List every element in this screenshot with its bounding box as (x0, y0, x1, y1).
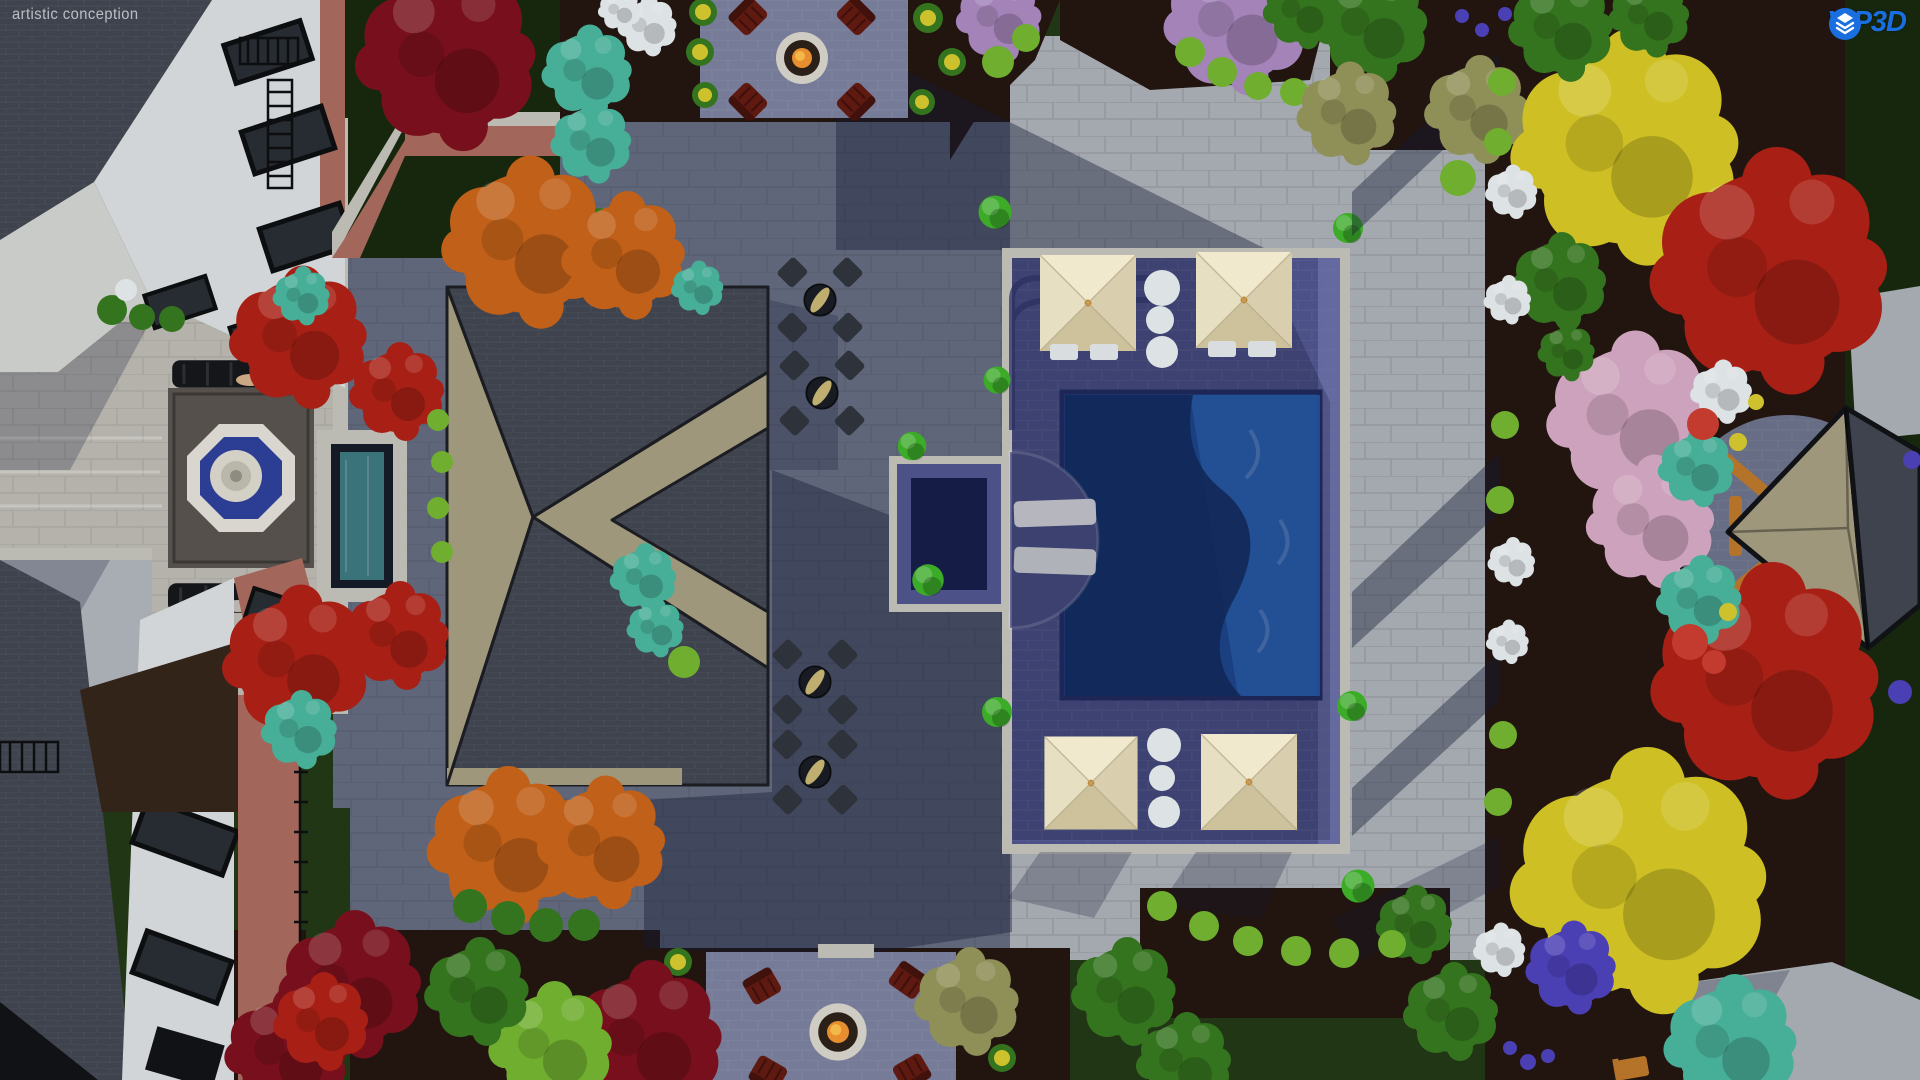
watermark-text: artistic conception (12, 6, 139, 24)
pavilion (447, 285, 768, 785)
fire-pit (809, 1003, 866, 1060)
vip3d-layers-icon (1827, 6, 1863, 42)
pavilion-roof (447, 287, 768, 785)
spa (889, 456, 1009, 612)
render-canvas: artistic conception VIP3D (0, 0, 1920, 1080)
vip3d-logo: VIP3D (1827, 6, 1906, 39)
pool-cabana (1040, 255, 1136, 351)
pool-cabana (1201, 734, 1297, 830)
pool-cabana (1044, 736, 1137, 829)
pool-cabana (1196, 252, 1292, 348)
reflecting-rill (317, 430, 407, 602)
landscape-render (0, 0, 1920, 1080)
fire-pit (776, 32, 828, 84)
fire-pit-lounge-north (700, 0, 908, 123)
